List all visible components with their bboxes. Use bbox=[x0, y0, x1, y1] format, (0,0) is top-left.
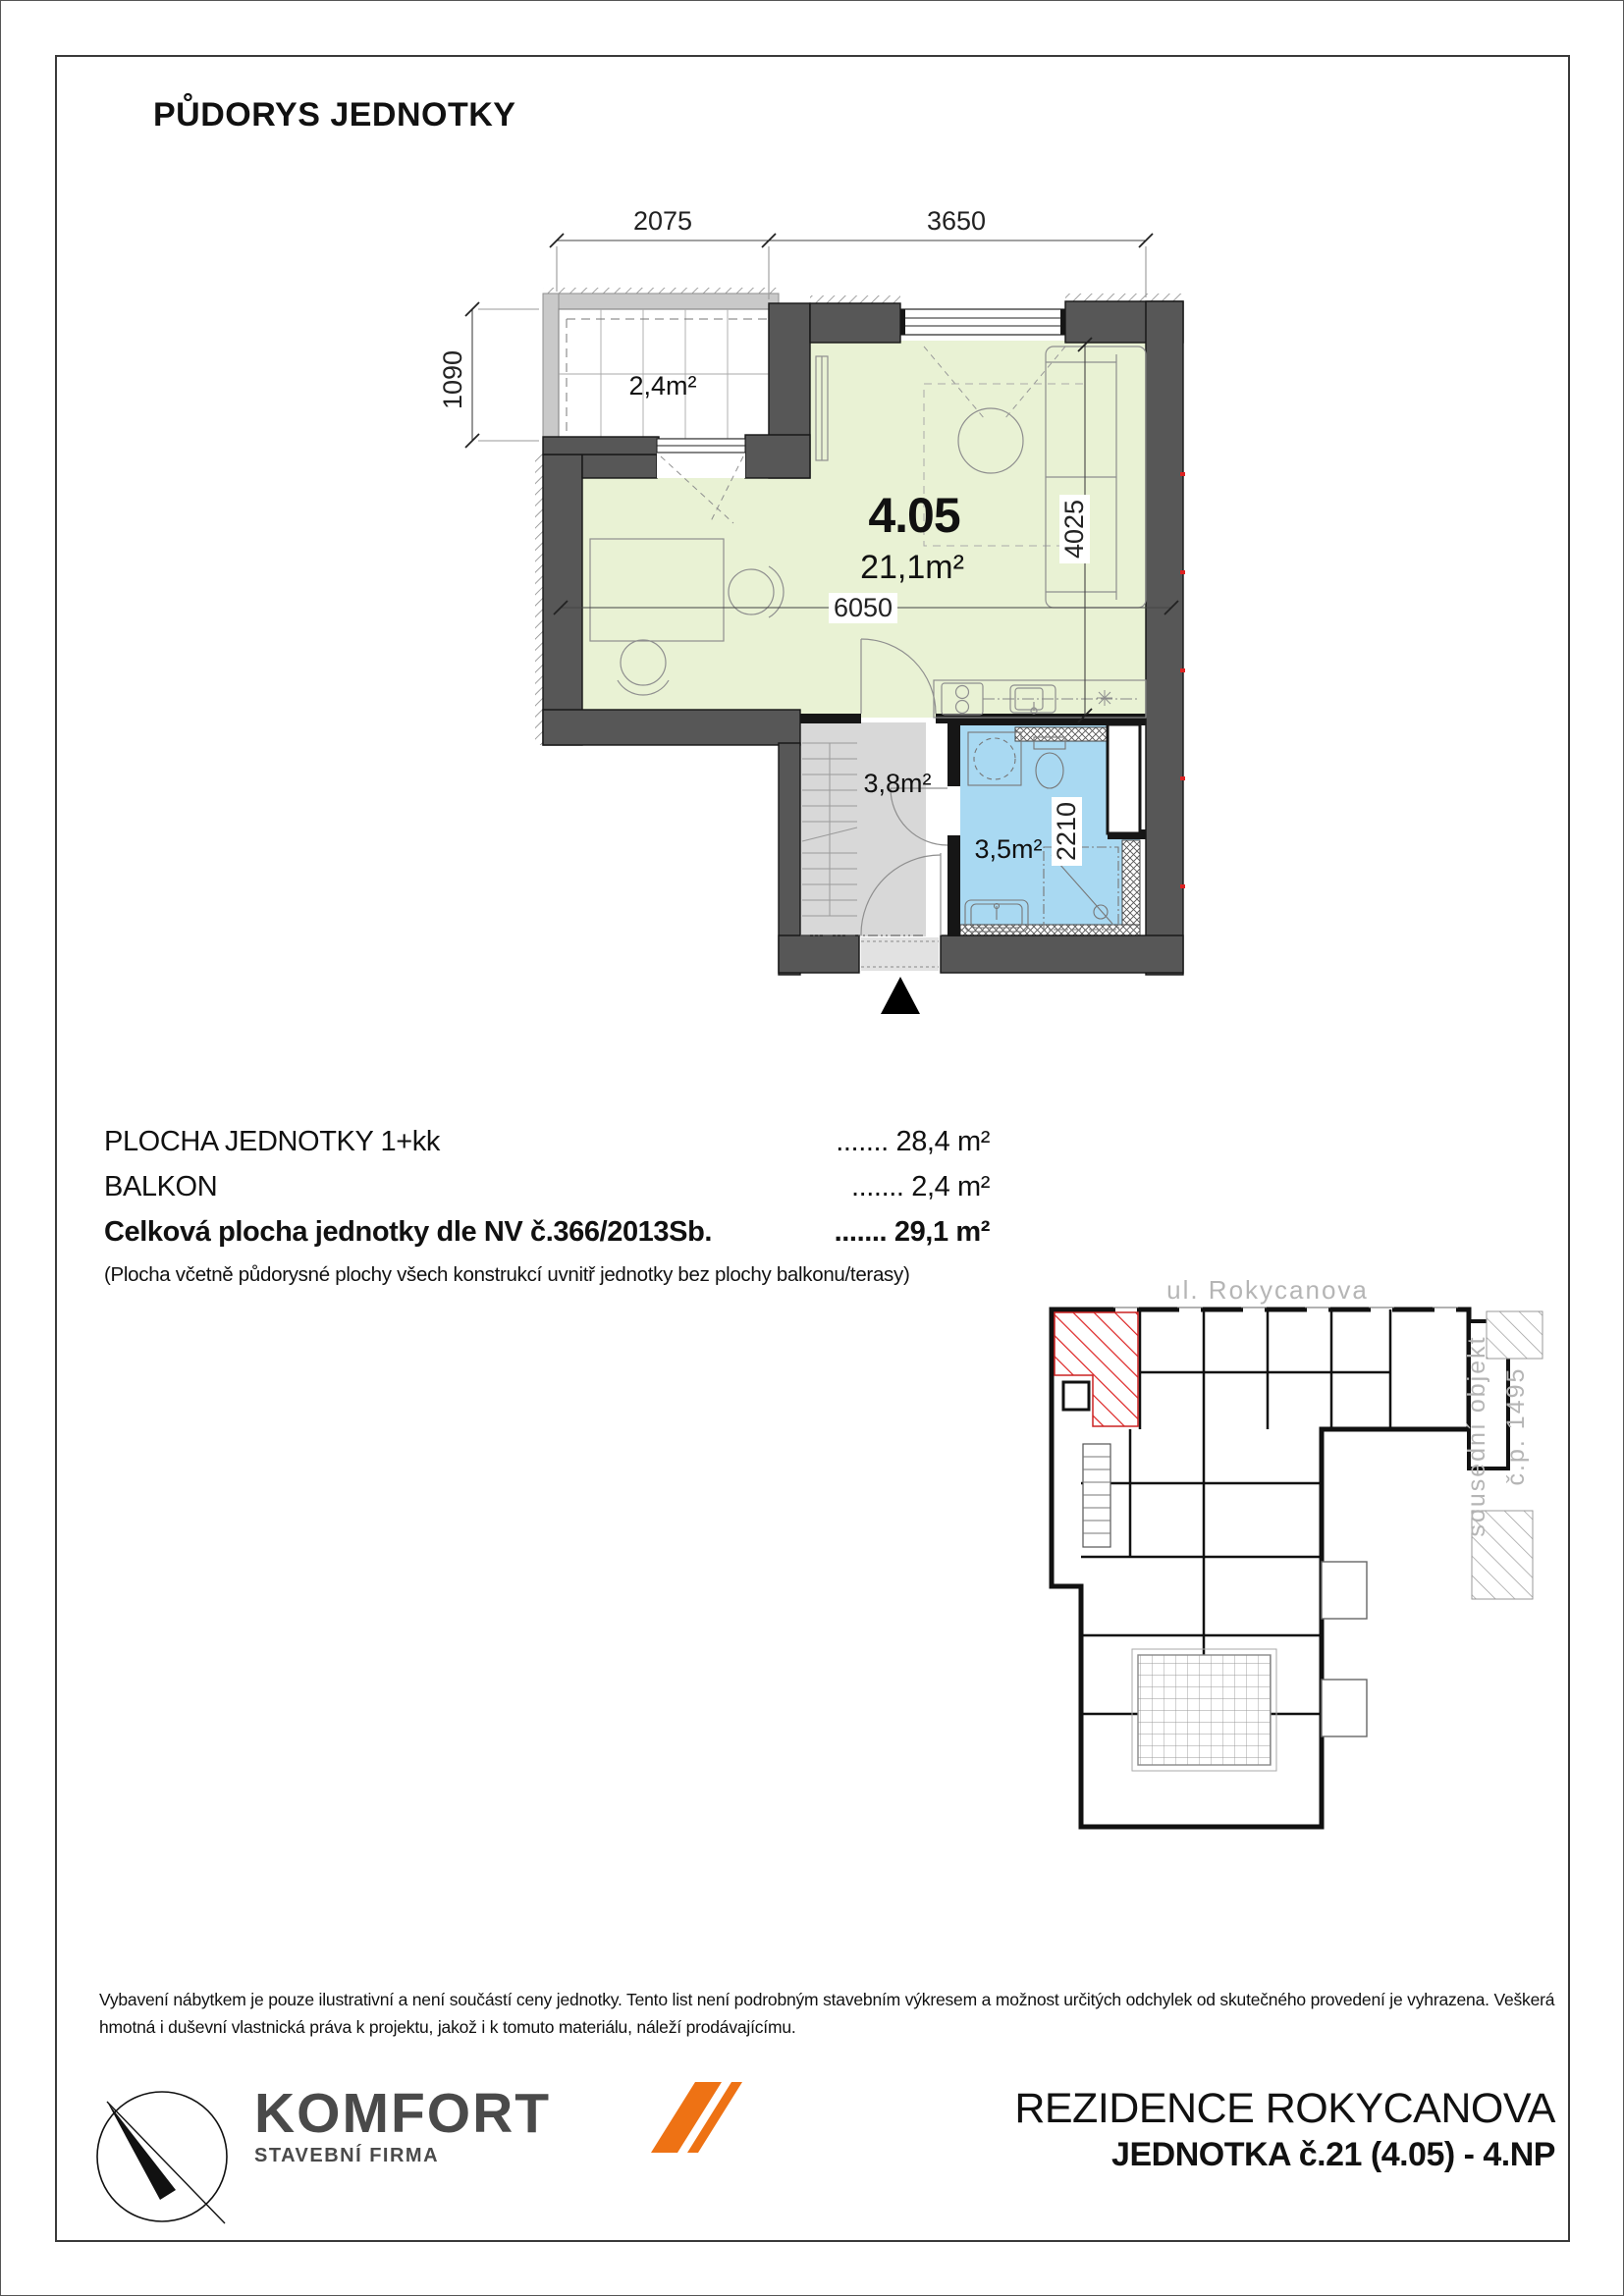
north-compass bbox=[87, 2080, 244, 2237]
neighbor-number-label: č.p. 1495 bbox=[1501, 1299, 1531, 1554]
dim-bath-depth: 2210 bbox=[1037, 792, 1096, 871]
sheet-titles: REZIDENCE ROKYCANOVA JEDNOTKA č.21 (4.05… bbox=[1014, 2086, 1555, 2174]
disclaimer-text: Vybavení nábytkem je pouze ilustrativní … bbox=[99, 1986, 1567, 2041]
dim-balcony-width: 2075 bbox=[604, 205, 722, 237]
project-title: REZIDENCE ROKYCANOVA bbox=[1014, 2086, 1555, 2132]
area-row-label: Celková plocha jednotky dle NV č.366/201… bbox=[104, 1216, 712, 1249]
page-title: PŮDORYS JEDNOTKY bbox=[153, 96, 515, 134]
dim-room-width: 3650 bbox=[897, 205, 1015, 237]
dim-room-depth: 4025 bbox=[1045, 490, 1104, 568]
unit-area-label: 21,1m² bbox=[834, 549, 991, 586]
area-row-value: ....... 28,4 m² bbox=[836, 1126, 990, 1158]
unit-title: JEDNOTKA č.21 (4.05) - 4.NP bbox=[1014, 2136, 1555, 2174]
logo-slashes-icon bbox=[639, 2074, 772, 2158]
area-row-value: ....... 29,1 m² bbox=[835, 1216, 990, 1249]
hall-area-label: 3,8m² bbox=[839, 768, 956, 799]
unit-number-label: 4.05 bbox=[836, 489, 993, 542]
area-table: PLOCHA JEDNOTKY 1+kk ....... 28,4 m² BAL… bbox=[104, 1126, 990, 1287]
brand-subtitle: STAVEBNÍ FIRMA bbox=[254, 2145, 551, 2167]
area-row-unit: PLOCHA JEDNOTKY 1+kk ....... 28,4 m² bbox=[104, 1126, 990, 1171]
area-row-total: Celková plocha jednotky dle NV č.366/201… bbox=[104, 1216, 990, 1261]
floorplan-sheet: PŮDORYS JEDNOTKY bbox=[0, 0, 1624, 2296]
area-row-value: ....... 2,4 m² bbox=[851, 1171, 990, 1203]
dim-balcony-depth: 1090 bbox=[423, 350, 482, 409]
balcony-area-label: 2,4m² bbox=[604, 370, 722, 401]
brand-name: KOMFORT bbox=[254, 2086, 551, 2142]
area-row-label: PLOCHA JEDNOTKY 1+kk bbox=[104, 1126, 440, 1158]
area-row-balcony: BALKON ....... 2,4 m² bbox=[104, 1171, 990, 1216]
area-row-label: BALKON bbox=[104, 1171, 217, 1203]
company-logo: KOMFORT STAVEBNÍ FIRMA bbox=[254, 2086, 551, 2167]
dim-unit-width: 6050 bbox=[804, 592, 922, 623]
area-note: (Plocha včetně půdorysné plochy všech ko… bbox=[104, 1263, 990, 1287]
neighbor-label: sousední objekt bbox=[1462, 1308, 1491, 1564]
street-label: ul. Rokycanova bbox=[1160, 1275, 1376, 1305]
